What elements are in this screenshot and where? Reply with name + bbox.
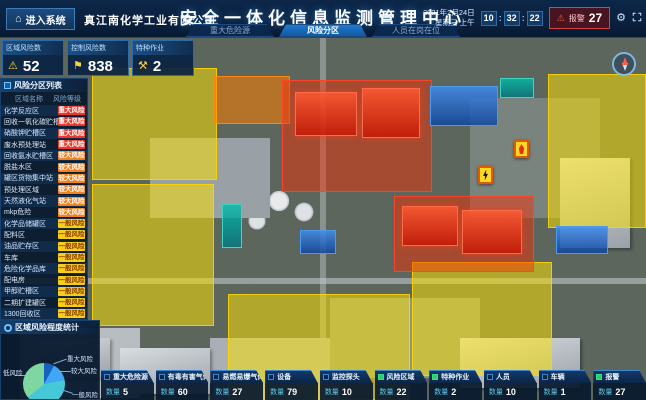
count-label: 数量 bbox=[380, 387, 394, 397]
count-value: 60 bbox=[178, 387, 188, 397]
risk-zone-general[interactable] bbox=[548, 74, 646, 228]
tab-major-hazard[interactable]: 重大危险源 bbox=[186, 24, 274, 37]
zone-name: 甲醇贮槽区 bbox=[4, 286, 39, 296]
risk-zone-major-box[interactable] bbox=[362, 88, 420, 138]
layer-segment: 特种作业数量2 bbox=[429, 370, 482, 400]
zone-name: mkp危险 bbox=[4, 207, 31, 217]
clock-minutes: 32 bbox=[504, 11, 520, 26]
layer-count-row: 数量27 bbox=[593, 383, 646, 400]
tab-risk-zones[interactable]: 风险分区 bbox=[279, 24, 367, 37]
count-label: 数量 bbox=[598, 387, 612, 397]
risk-zone-general[interactable] bbox=[412, 262, 552, 376]
zone-name: 油品贮存区 bbox=[4, 241, 39, 251]
layer-count-row: 数量5 bbox=[101, 383, 154, 400]
header-bar: ⌂ 进入系统 真江南化学工业有限公司 安全一体化信息监测管理中心 重大危险源 风… bbox=[0, 0, 646, 38]
layer-label: 有毒有害气体 bbox=[168, 372, 209, 382]
count-value: 10 bbox=[342, 387, 352, 397]
zone-name: 配电房 bbox=[4, 275, 25, 285]
layer-toggle[interactable]: 监控探头 bbox=[320, 370, 373, 383]
risk-zone-list-panel: 风险分区列表 区域名称 风险等级 化学反应区重大风险回收一氧化碳贮槽区重大风险硝… bbox=[0, 78, 88, 320]
checkbox-icon[interactable] bbox=[268, 374, 274, 380]
checkbox-icon[interactable] bbox=[596, 374, 602, 380]
list-item[interactable]: 配电房一般风险 bbox=[1, 274, 87, 285]
checkbox-icon[interactable] bbox=[104, 374, 110, 380]
risk-level-badge: 较大风险 bbox=[58, 185, 85, 194]
count-value: 1 bbox=[561, 387, 566, 397]
clock-seconds: 22 bbox=[527, 11, 543, 26]
count-label: 数量 bbox=[161, 387, 175, 397]
layer-count-row: 数量22 bbox=[375, 383, 428, 400]
count-label: 数量 bbox=[544, 387, 558, 397]
risk-list-rows: 化学反应区重大风险回收一氧化碳贮槽区重大风险硝酸钾贮槽区重大风险废水预处理站重大… bbox=[1, 105, 87, 320]
layer-segment: 设备数量79 bbox=[265, 370, 318, 400]
zone-name: 天然液化气站 bbox=[4, 196, 46, 206]
zone-name: 化学品储罐区 bbox=[4, 219, 46, 229]
layer-count-row: 数量10 bbox=[320, 383, 373, 400]
risk-level-badge: 较大风险 bbox=[58, 197, 85, 206]
layer-label: 人员 bbox=[496, 372, 510, 382]
risk-level-badge: 一般风险 bbox=[58, 298, 85, 307]
layer-segment: 人员数量10 bbox=[484, 370, 537, 400]
list-item[interactable]: 1300回收区一般风险 bbox=[1, 308, 87, 319]
list-item[interactable]: 化学反应区重大风险 bbox=[1, 105, 87, 116]
layer-count-row: 数量10 bbox=[484, 383, 537, 400]
layer-label: 重大危险源 bbox=[113, 372, 148, 382]
layer-toggle[interactable]: 有毒有害气体 bbox=[156, 370, 209, 383]
alarm-label: 报警 bbox=[569, 13, 585, 24]
risk-level-badge: 一般风险 bbox=[58, 253, 85, 262]
compass-icon[interactable] bbox=[612, 52, 636, 76]
risk-level-badge: 一般风险 bbox=[58, 219, 85, 228]
zone-name: 车库 bbox=[4, 253, 18, 263]
risk-level-badge: 一般风险 bbox=[58, 242, 85, 251]
list-item[interactable]: 二期扩建罐区一般风险 bbox=[1, 297, 87, 308]
list-item[interactable]: 回收氨水贮槽区较大风险 bbox=[1, 150, 87, 161]
bottom-bar: 重大危险源数量5有毒有害气体数量60易燃易爆气体数量27设备数量79监控探头数量… bbox=[101, 370, 646, 400]
stat-label: 区域风险数 bbox=[3, 41, 63, 55]
column-zone-name: 区域名称 bbox=[15, 94, 43, 104]
risk-zone-low[interactable] bbox=[430, 86, 498, 126]
stat-value: 52 bbox=[23, 58, 40, 75]
risk-level-badge: 重大风险 bbox=[58, 129, 85, 138]
count-label: 数量 bbox=[270, 387, 284, 397]
count-label: 数量 bbox=[489, 387, 503, 397]
risk-list-columns: 区域名称 风险等级 bbox=[1, 92, 87, 105]
risk-level-badge: 重大风险 bbox=[58, 106, 85, 115]
risk-level-badge: 较大风险 bbox=[58, 163, 85, 172]
list-item[interactable]: 天然液化气站较大风险 bbox=[1, 195, 87, 206]
alarm-badge[interactable]: ⚠ 报警 27 bbox=[549, 7, 610, 29]
list-item[interactable]: 废水预处理站重大风险 bbox=[1, 139, 87, 150]
zone-name: 二期扩建罐区 bbox=[4, 298, 46, 308]
layer-segment: 车辆数量1 bbox=[539, 370, 592, 400]
risk-zone-major-box[interactable] bbox=[402, 206, 458, 246]
layer-label: 特种作业 bbox=[441, 372, 469, 382]
flame-icon bbox=[518, 144, 525, 154]
layer-count-row: 数量27 bbox=[210, 383, 263, 400]
stat-value: 838 bbox=[88, 58, 113, 75]
zone-name: 回收一氧化碳贮槽区 bbox=[4, 117, 58, 127]
count-value: 5 bbox=[123, 387, 128, 397]
stat-area-risk: 区域风险数 ⚠ 52 bbox=[2, 40, 64, 76]
count-value: 10 bbox=[506, 387, 516, 397]
checkbox-icon[interactable] bbox=[378, 374, 384, 380]
layer-count-row: 数量1 bbox=[539, 383, 592, 400]
list-panel-icon bbox=[4, 82, 11, 89]
clock-colon: : bbox=[522, 13, 525, 23]
layer-count-row: 数量79 bbox=[265, 383, 318, 400]
pie-label-large: 较大风险 bbox=[71, 365, 97, 375]
pie-label-low: 低风险 bbox=[3, 367, 23, 377]
gear-icon[interactable]: ⚙ bbox=[616, 13, 626, 24]
zone-name: 危险化学品库 bbox=[4, 264, 46, 274]
layer-label: 设备 bbox=[277, 372, 291, 382]
pie-leader-line bbox=[59, 371, 71, 372]
checkbox-icon[interactable] bbox=[487, 374, 493, 380]
risk-zone-large[interactable] bbox=[214, 76, 290, 124]
stat-value: 2 bbox=[153, 58, 161, 75]
list-item[interactable]: 甲醇贮槽区一般风险 bbox=[1, 286, 87, 297]
checkbox-icon[interactable] bbox=[323, 374, 329, 380]
electric-warning-marker[interactable] bbox=[478, 166, 493, 184]
fire-warning-marker[interactable] bbox=[514, 140, 529, 158]
risk-chart-title-bar: 区域风险程度统计 bbox=[1, 321, 99, 334]
count-value: 27 bbox=[232, 387, 242, 397]
clock-display: 10 : 32 : 22 bbox=[481, 11, 543, 26]
layer-label: 监控探头 bbox=[332, 372, 360, 382]
column-risk-level: 风险等级 bbox=[53, 94, 81, 104]
list-item[interactable]: 脱盐水区较大风险 bbox=[1, 161, 87, 172]
checkbox-icon[interactable] bbox=[542, 374, 548, 380]
layer-segment: 报警数量27 bbox=[593, 370, 646, 400]
layer-label: 报警 bbox=[605, 372, 619, 382]
date-line1: 2021年2月24日 bbox=[423, 8, 475, 18]
flag-icon: ⚑ bbox=[73, 61, 83, 72]
chart-panel-icon bbox=[4, 324, 12, 332]
stat-special-work: 特种作业 ⚒ 2 bbox=[132, 40, 194, 76]
layer-segment: 易燃易爆气体数量27 bbox=[210, 370, 263, 400]
list-item[interactable]: 预处理区域较大风险 bbox=[1, 184, 87, 195]
zone-name: 化学反应区 bbox=[4, 106, 39, 116]
zone-name: 配料区 bbox=[4, 230, 25, 240]
count-value: 22 bbox=[397, 387, 407, 397]
risk-level-badge: 一般风险 bbox=[58, 309, 85, 318]
count-value: 27 bbox=[615, 387, 625, 397]
layer-segment: 监控探头数量10 bbox=[320, 370, 373, 400]
count-label: 数量 bbox=[434, 387, 448, 397]
stats-strip: 区域风险数 ⚠ 52 控制风险数 ⚑ 838 特种作业 ⚒ 2 bbox=[2, 40, 194, 76]
list-item[interactable]: 油品贮存区一般风险 bbox=[1, 241, 87, 252]
risk-zone-general[interactable] bbox=[92, 68, 217, 180]
layer-toggle[interactable]: 易燃易爆气体 bbox=[210, 370, 263, 383]
list-item[interactable]: mkp危险较大风险 bbox=[1, 207, 87, 218]
layer-count-row: 数量60 bbox=[156, 383, 209, 400]
count-label: 数量 bbox=[215, 387, 229, 397]
dashboard-root: ⌂ 进入系统 真江南化学工业有限公司 安全一体化信息监测管理中心 重大危险源 风… bbox=[0, 0, 646, 400]
layer-label: 易燃易爆气体 bbox=[222, 372, 263, 382]
risk-statistics-panel: 区域风险程度统计 重大风险 较大风险 一般风险 低风险 bbox=[0, 320, 100, 400]
stat-label: 特种作业 bbox=[133, 41, 193, 55]
alarm-triangle-icon: ⚠ bbox=[557, 14, 565, 23]
zone-name: 脱盐水区 bbox=[4, 162, 32, 172]
risk-level-badge: 一般风险 bbox=[58, 276, 85, 285]
risk-level-badge: 重大风险 bbox=[58, 140, 85, 149]
count-label: 数量 bbox=[325, 387, 339, 397]
view-tabs: 重大危险源 风险分区 人员在岗在位 bbox=[186, 24, 460, 37]
pie-label-major: 重大风险 bbox=[67, 353, 93, 363]
risk-list-title: 风险分区列表 bbox=[14, 80, 62, 91]
risk-level-badge: 一般风险 bbox=[58, 287, 85, 296]
stat-control-risk: 控制风险数 ⚑ 838 bbox=[67, 40, 129, 76]
risk-zone-general[interactable] bbox=[92, 184, 214, 326]
alarm-count: 27 bbox=[589, 11, 602, 25]
layer-count-row: 数量2 bbox=[429, 383, 482, 400]
risk-level-badge: 一般风险 bbox=[58, 264, 85, 273]
layer-toggle[interactable]: 风险区域 bbox=[375, 370, 428, 383]
zone-name: 预处理区域 bbox=[4, 185, 39, 195]
checkbox-icon[interactable] bbox=[213, 374, 219, 380]
layer-toggle[interactable]: 重大危险源 bbox=[101, 370, 154, 383]
risk-chart-title: 区域风险程度统计 bbox=[15, 322, 79, 333]
work-tools-icon: ⚒ bbox=[138, 61, 148, 72]
count-label: 数量 bbox=[106, 387, 120, 397]
zone-name: 回收氨水贮槽区 bbox=[4, 151, 53, 161]
risk-zone-low[interactable] bbox=[300, 230, 336, 254]
date-line2: 星期三 上午 bbox=[423, 18, 475, 28]
list-item[interactable]: 罐区货物集中站较大风险 bbox=[1, 173, 87, 184]
list-item[interactable]: 配料区一般风险 bbox=[1, 229, 87, 240]
warning-triangle-icon: ⚠ bbox=[8, 61, 18, 72]
zone-name: 废水预处理站 bbox=[4, 140, 46, 150]
list-item[interactable]: 危险化学品库一般风险 bbox=[1, 263, 87, 274]
count-value: 79 bbox=[287, 387, 297, 397]
zone-name: 1300回收区 bbox=[4, 309, 41, 319]
checkbox-icon[interactable] bbox=[159, 374, 165, 380]
fullscreen-icon[interactable] bbox=[632, 12, 642, 25]
layer-toggle[interactable]: 报警 bbox=[593, 370, 646, 383]
layer-segment: 有毒有害气体数量60 bbox=[156, 370, 209, 400]
layer-toggle[interactable]: 特种作业 bbox=[429, 370, 482, 383]
layer-segment: 风险区域数量22 bbox=[375, 370, 428, 400]
risk-zone-major-box[interactable] bbox=[295, 92, 357, 136]
risk-zone-low[interactable] bbox=[222, 204, 242, 248]
list-item[interactable]: 车库一般风险 bbox=[1, 252, 87, 263]
clock-colon: : bbox=[499, 13, 502, 23]
lightning-icon bbox=[482, 170, 489, 181]
layer-toggle[interactable]: 设备 bbox=[265, 370, 318, 383]
risk-zone-low[interactable] bbox=[500, 78, 534, 98]
header-right: 2021年2月24日 星期三 上午 10 : 32 : 22 ⚠ 报警 27 ⚙ bbox=[423, 4, 642, 32]
risk-list-title-bar: 风险分区列表 bbox=[1, 79, 87, 92]
risk-zone-major-box[interactable] bbox=[462, 210, 522, 254]
checkbox-icon[interactable] bbox=[432, 374, 438, 380]
layer-label: 风险区域 bbox=[387, 372, 415, 382]
list-item[interactable]: 回收一氧化碳贮槽区重大风险 bbox=[1, 116, 87, 127]
zone-name: 罐区货物集中站 bbox=[4, 173, 53, 183]
risk-level-badge: 较大风险 bbox=[58, 208, 85, 217]
risk-level-badge: 重大风险 bbox=[58, 117, 85, 126]
risk-level-badge: 较大风险 bbox=[58, 174, 85, 183]
layer-label: 车辆 bbox=[551, 372, 565, 382]
risk-level-badge: 一般风险 bbox=[58, 230, 85, 239]
pie-label-general: 一般风险 bbox=[72, 389, 98, 399]
risk-level-badge: 较大风险 bbox=[58, 151, 85, 160]
list-item[interactable]: 硝酸钾贮槽区重大风险 bbox=[1, 128, 87, 139]
stat-label: 控制风险数 bbox=[68, 41, 128, 55]
clock-hours: 10 bbox=[481, 11, 497, 26]
count-value: 2 bbox=[451, 387, 456, 397]
list-item[interactable]: 化学品储罐区一般风险 bbox=[1, 218, 87, 229]
layer-toggle[interactable]: 车辆 bbox=[539, 370, 592, 383]
layer-segment: 重大危险源数量5 bbox=[101, 370, 154, 400]
zone-name: 硝酸钾贮槽区 bbox=[4, 128, 46, 138]
date-display: 2021年2月24日 星期三 上午 bbox=[423, 8, 475, 28]
pie-leader-line bbox=[53, 359, 66, 365]
layer-toggle[interactable]: 人员 bbox=[484, 370, 537, 383]
risk-zone-low[interactable] bbox=[556, 226, 608, 254]
risk-pie-chart[interactable] bbox=[23, 363, 65, 400]
